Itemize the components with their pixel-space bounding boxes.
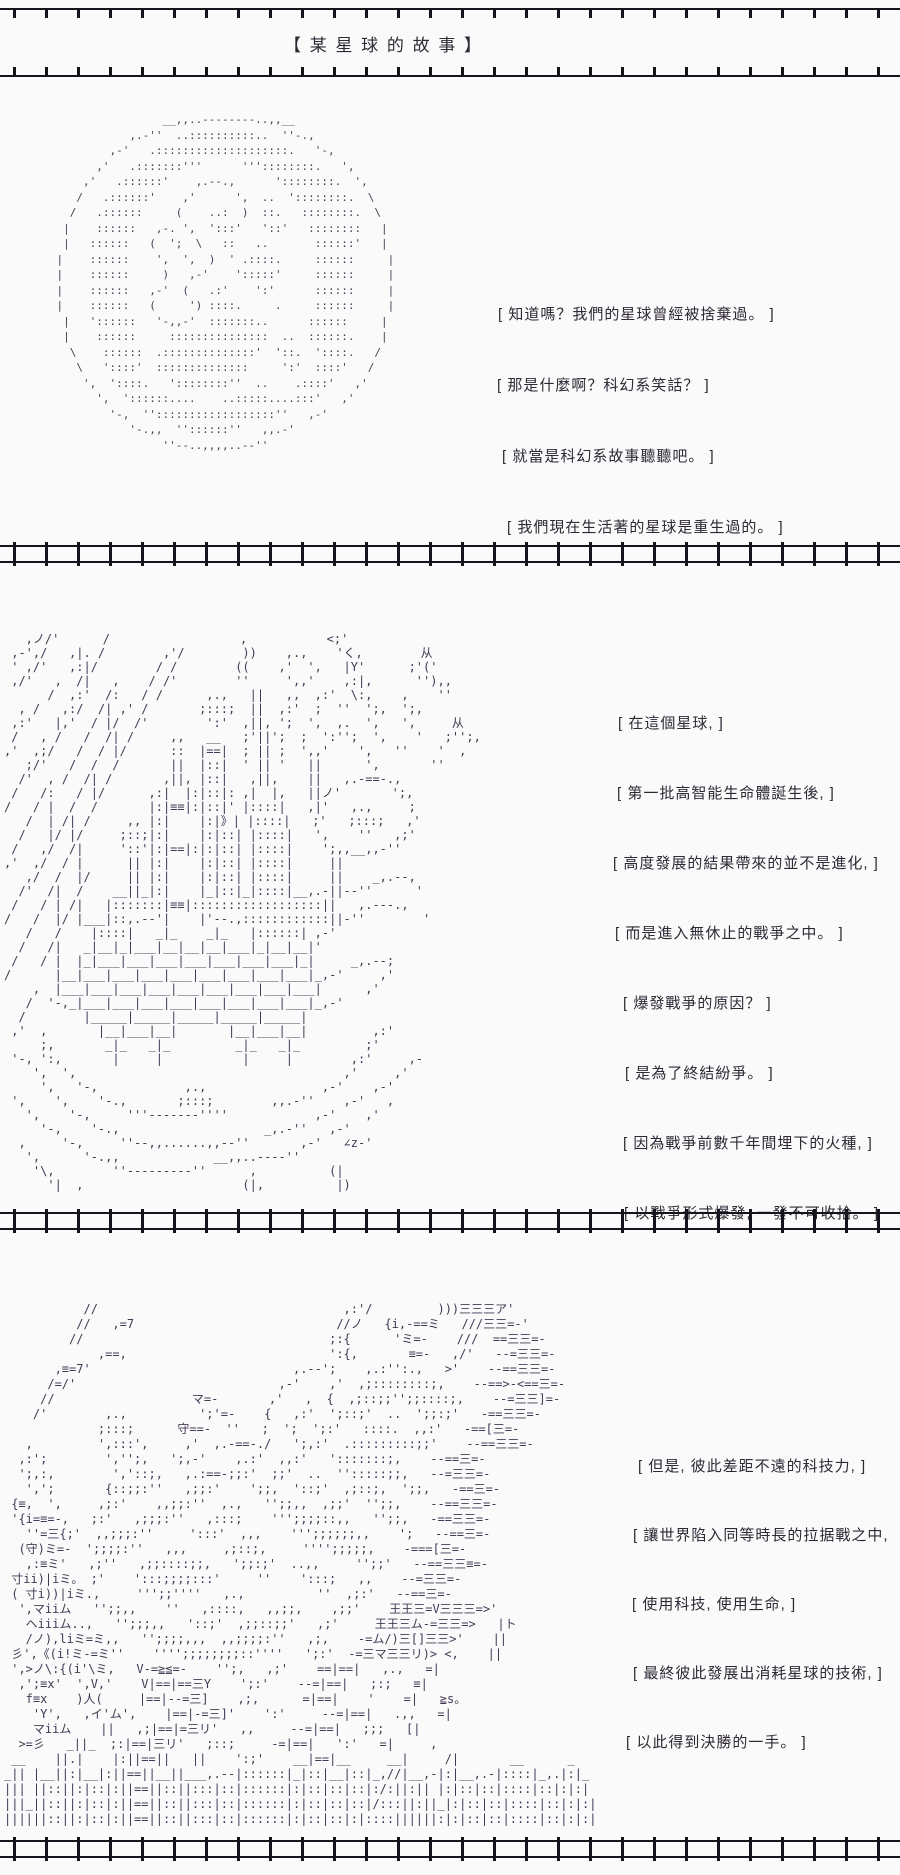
panel-1-ascii-art-planet: __,,..--------..,,__ ,.-'' ..::::::::::.… — [30, 112, 394, 453]
panel-divider-bottom — [0, 1840, 900, 1858]
panel-divider-1 — [0, 545, 900, 563]
dialogue-line: [ 而是進入無休止的戰爭之中。 ] — [615, 916, 879, 952]
panel-3-ascii-art-explosion-city: // ,:'/ )))三三三ア' // ,=7 //ノ {i,-==ミ ///三… — [4, 1302, 596, 1827]
page-title: 【 某 星 球 的 故 事 】 — [284, 31, 483, 56]
dialogue-line: [ 高度發展的結果帶來的並不是進化, ] — [613, 846, 879, 882]
dialogue-line: [ 是為了終結紛爭。 ] — [625, 1056, 879, 1092]
dialogue-line: [ 最終彼此發展出消耗星球的技術, ] — [633, 1656, 889, 1691]
film-rail-title-bottom — [0, 67, 900, 77]
dialogue-line: [ 就當是科幻系故事聽聽吧。 ] — [502, 438, 784, 475]
dialogue-line: [ 讓世界陷入同等時長的拉据戰之中, — [633, 1518, 889, 1553]
dialogue-line: [ 使用科技, 使用生命, ] — [632, 1587, 889, 1622]
dialogue-line: [ 但是, 彼此差距不遠的科技力, ] — [638, 1449, 889, 1484]
film-rail-top — [0, 8, 900, 10]
dialogue-line: [ 爆發戰爭的原因？ ] — [623, 986, 879, 1022]
dialogue-line: [ 那是什麼啊？科幻系笑話？ ] — [497, 367, 784, 404]
panel-1-dialogue: [ 知道嗎？我們的星球曾經被捨棄過。 ] [ 那是什麼啊？科幻系笑話？ ] [ … — [494, 262, 784, 580]
panel-3-dialogue: [ 但是, 彼此差距不遠的科技力, ] [ 讓世界陷入同等時長的拉据戰之中, [… — [626, 1415, 889, 1794]
panel-2-dialogue: [ 在這個星球, ] [ 第一批高智能生命體誕生後, ] [ 高度發展的結果帶來… — [613, 672, 879, 1266]
dialogue-line: [ 第一批高智能生命體誕生後, ] — [617, 776, 879, 812]
aa-comic-page: 【 某 星 球 的 故 事 】 __,,..--------..,,__ ,.-… — [0, 0, 900, 1875]
panel-2-ascii-art-war-city: ,ノ/' / , <;' ,-',/ ,|. / ,'/ )) ,., 'く, … — [4, 632, 481, 1192]
dialogue-line: [ 以此得到決勝的一手。 ] — [626, 1725, 889, 1760]
dialogue-line: [ 在這個星球, ] — [618, 706, 879, 742]
dialogue-line: [ 因為戰爭前數千年間埋下的火種, ] — [623, 1126, 879, 1162]
panel-divider-2 — [0, 1212, 900, 1230]
dialogue-line: [ 我們現在生活著的星球是重生過的。 ] — [507, 509, 784, 546]
dialogue-line: [ 知道嗎？我們的星球曾經被捨棄過。 ] — [498, 296, 784, 333]
